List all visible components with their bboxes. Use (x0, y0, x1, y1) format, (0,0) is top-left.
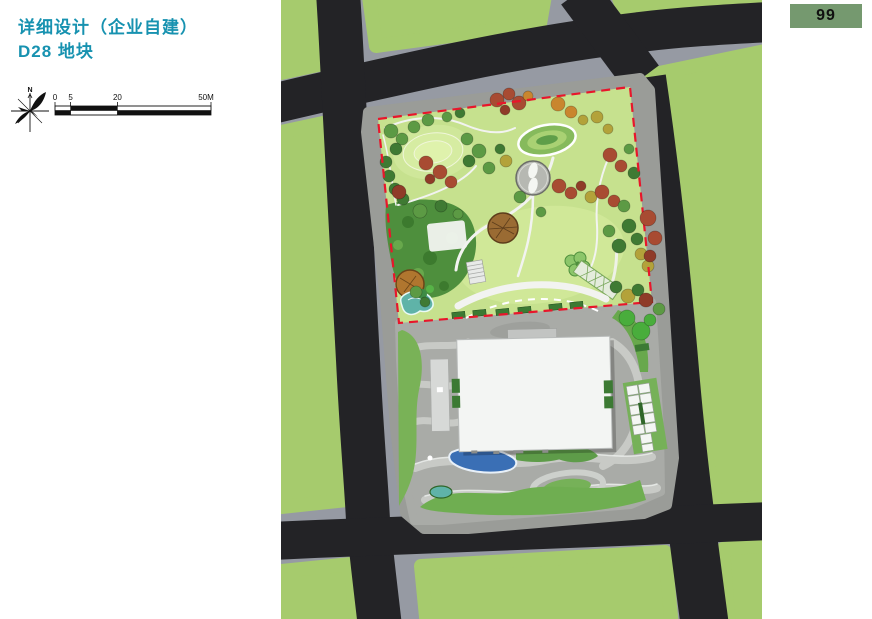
page-title: 详细设计（企业自建） (18, 16, 198, 40)
entrance-west-a (452, 379, 460, 393)
scale-tick-5: 5 (68, 93, 73, 102)
small-pond (430, 486, 452, 498)
annex-ramp (430, 359, 450, 431)
scale-tick-20: 20 (113, 93, 122, 102)
scale-bar: 0 5 20 50M (53, 93, 214, 115)
entrance-east-a (604, 380, 613, 393)
page-number: 99 (816, 7, 836, 25)
parcel-bottom-middle (421, 552, 672, 619)
entrance-west-b (452, 396, 460, 408)
annex-dot (437, 387, 443, 392)
compass-and-scale: N 0 5 20 50M (8, 83, 248, 138)
page-subtitle: D28 地块 (18, 40, 198, 64)
building-footprint (457, 336, 613, 451)
site-plan-map (281, 0, 762, 619)
scale-tick-0: 0 (53, 93, 58, 102)
plaza-dot (428, 456, 433, 461)
title-block: 详细设计（企业自建） D28 地块 (18, 16, 198, 64)
north-arrow-icon: N (11, 87, 49, 132)
forest-clearing (427, 220, 468, 252)
parcel-bottom-left (281, 564, 356, 619)
spiral-plaza (516, 161, 550, 195)
stairs (466, 260, 486, 284)
site-plan-canvas (281, 0, 762, 619)
page-number-badge: 99 (790, 4, 862, 28)
north-label: N (27, 87, 32, 94)
park (378, 87, 654, 323)
scale-tick-50m: 50M (198, 93, 214, 102)
entrance-east-b (604, 396, 613, 408)
page-sheet: 详细设计（企业自建） D28 地块 N 0 5 20 50M (0, 0, 872, 619)
parcel-bottom-right (723, 545, 762, 619)
